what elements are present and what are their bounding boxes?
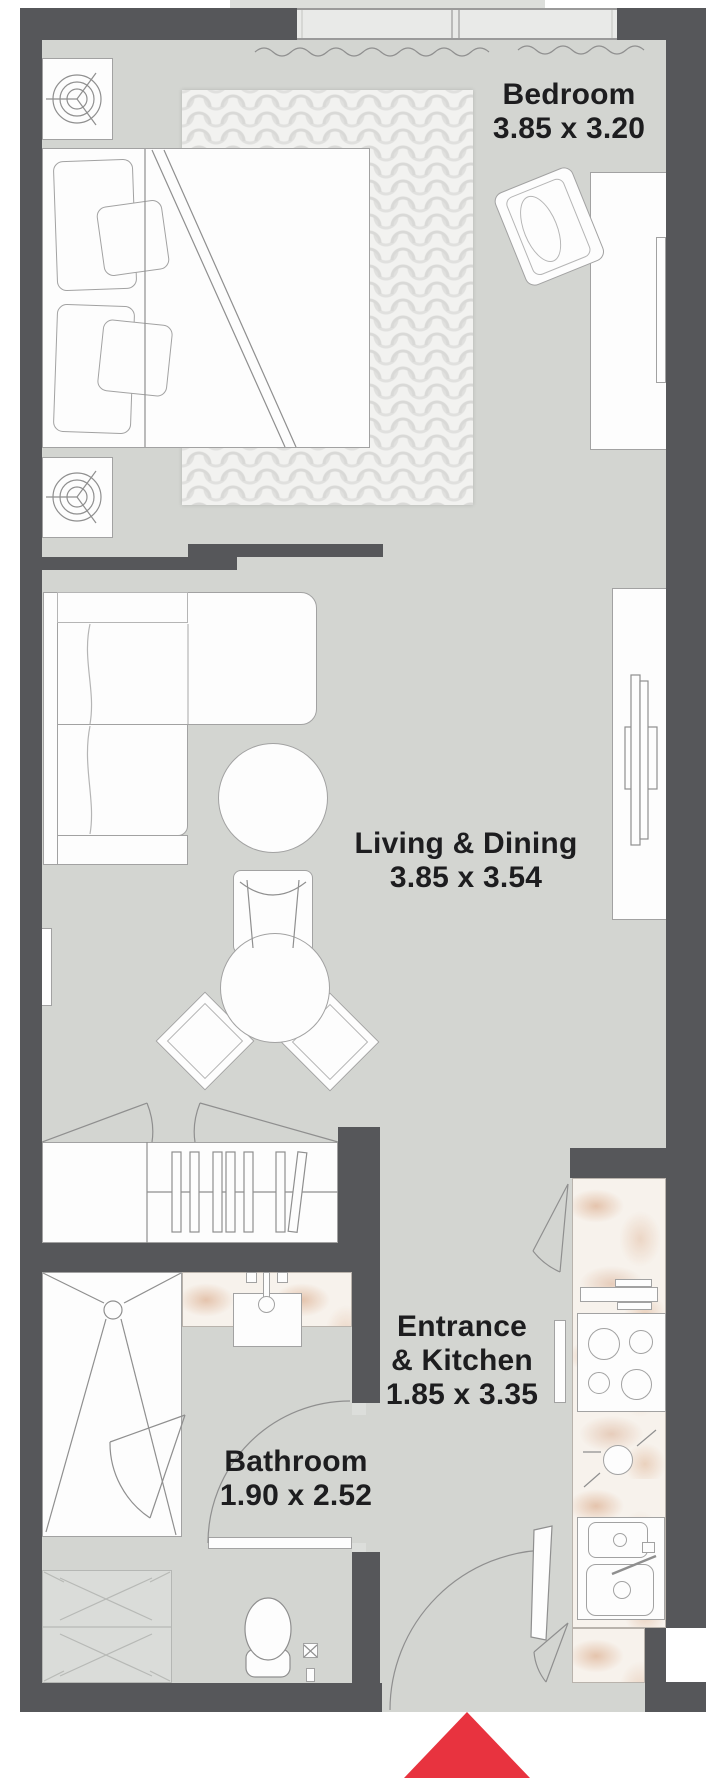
room-dimensions: 3.85 x 3.20 bbox=[493, 112, 645, 146]
entrance-kitchen-label: Entrance & Kitchen 1.85 x 3.35 bbox=[386, 1310, 538, 1412]
flush-button bbox=[306, 1668, 315, 1682]
tv-unit bbox=[612, 588, 668, 920]
bedroom-label: Bedroom 3.85 x 3.20 bbox=[493, 78, 645, 146]
sofa-chaise bbox=[57, 724, 188, 836]
bathroom-door-leaf bbox=[208, 1537, 352, 1549]
wall-kitchen-corner bbox=[645, 1628, 666, 1684]
hood-handle bbox=[580, 1287, 658, 1302]
kitchen-wall-stub bbox=[570, 1148, 668, 1178]
bedroom-window bbox=[297, 8, 617, 40]
nightstand-top bbox=[42, 58, 113, 140]
wall-setback bbox=[666, 1628, 709, 1682]
sink-drain bbox=[613, 1581, 631, 1599]
kitchen-counter-lower bbox=[572, 1628, 645, 1683]
sink-tap bbox=[642, 1542, 655, 1553]
desk-drawer bbox=[656, 237, 666, 383]
nightstand-bottom bbox=[42, 457, 113, 538]
room-dimensions: 1.85 x 3.35 bbox=[386, 1378, 538, 1412]
hood-tab bbox=[615, 1279, 652, 1287]
tall-cabinet-panel bbox=[554, 1320, 566, 1403]
burner bbox=[629, 1330, 653, 1354]
wall-below-wardrobe bbox=[20, 1243, 380, 1272]
faucet-stem bbox=[263, 1272, 270, 1299]
wall-right bbox=[666, 8, 706, 1628]
sofa-end bbox=[57, 835, 188, 865]
burner bbox=[588, 1328, 620, 1360]
bathroom-wall-lower bbox=[352, 1552, 380, 1712]
room-name: & Kitchen bbox=[386, 1344, 538, 1378]
wall-bottom-left bbox=[20, 1683, 382, 1712]
room-name: Entrance bbox=[386, 1310, 538, 1344]
room-name: Bathroom bbox=[220, 1445, 372, 1479]
tap-handle bbox=[277, 1272, 288, 1283]
floor-plan: Bedroom 3.85 x 3.20 Living & Dining 3.85… bbox=[0, 0, 709, 1784]
sink-drain bbox=[613, 1533, 627, 1547]
door-frame-notch bbox=[352, 1403, 366, 1415]
room-name: Living & Dining bbox=[355, 827, 578, 861]
sofa-back-cushion bbox=[57, 592, 188, 623]
room-name: Bedroom bbox=[493, 78, 645, 112]
wall-bottom-right bbox=[645, 1682, 706, 1712]
wardrobe bbox=[42, 1142, 338, 1243]
partition-bar bbox=[188, 544, 383, 557]
coffee-table bbox=[218, 743, 328, 853]
bathroom-wall-upper bbox=[352, 1272, 380, 1403]
door-frame-notch bbox=[352, 1543, 366, 1552]
wall-top-left bbox=[20, 8, 297, 40]
dining-table bbox=[220, 933, 330, 1043]
wall-left bbox=[20, 8, 42, 1712]
entrance-arrow bbox=[404, 1712, 530, 1778]
pillow bbox=[96, 319, 173, 398]
burner bbox=[621, 1369, 652, 1400]
room-dimensions: 3.85 x 3.54 bbox=[355, 861, 578, 895]
partition-bar bbox=[42, 557, 237, 570]
tap-handle bbox=[246, 1272, 257, 1283]
bathroom-label: Bathroom 1.90 x 2.52 bbox=[220, 1445, 372, 1513]
burner bbox=[588, 1372, 610, 1394]
kitchen-basin bbox=[603, 1445, 633, 1475]
room-dimensions: 1.90 x 2.52 bbox=[220, 1479, 372, 1513]
faucet-knob bbox=[258, 1296, 275, 1313]
shower bbox=[42, 1272, 182, 1537]
sofa-armrest bbox=[43, 592, 58, 865]
toilet-paper-holder bbox=[303, 1643, 318, 1658]
utility-shaft bbox=[42, 1570, 172, 1683]
pillow bbox=[95, 199, 170, 278]
living-dining-label: Living & Dining 3.85 x 3.54 bbox=[355, 827, 578, 895]
hood-tab bbox=[617, 1302, 652, 1310]
cooktop bbox=[577, 1313, 666, 1412]
